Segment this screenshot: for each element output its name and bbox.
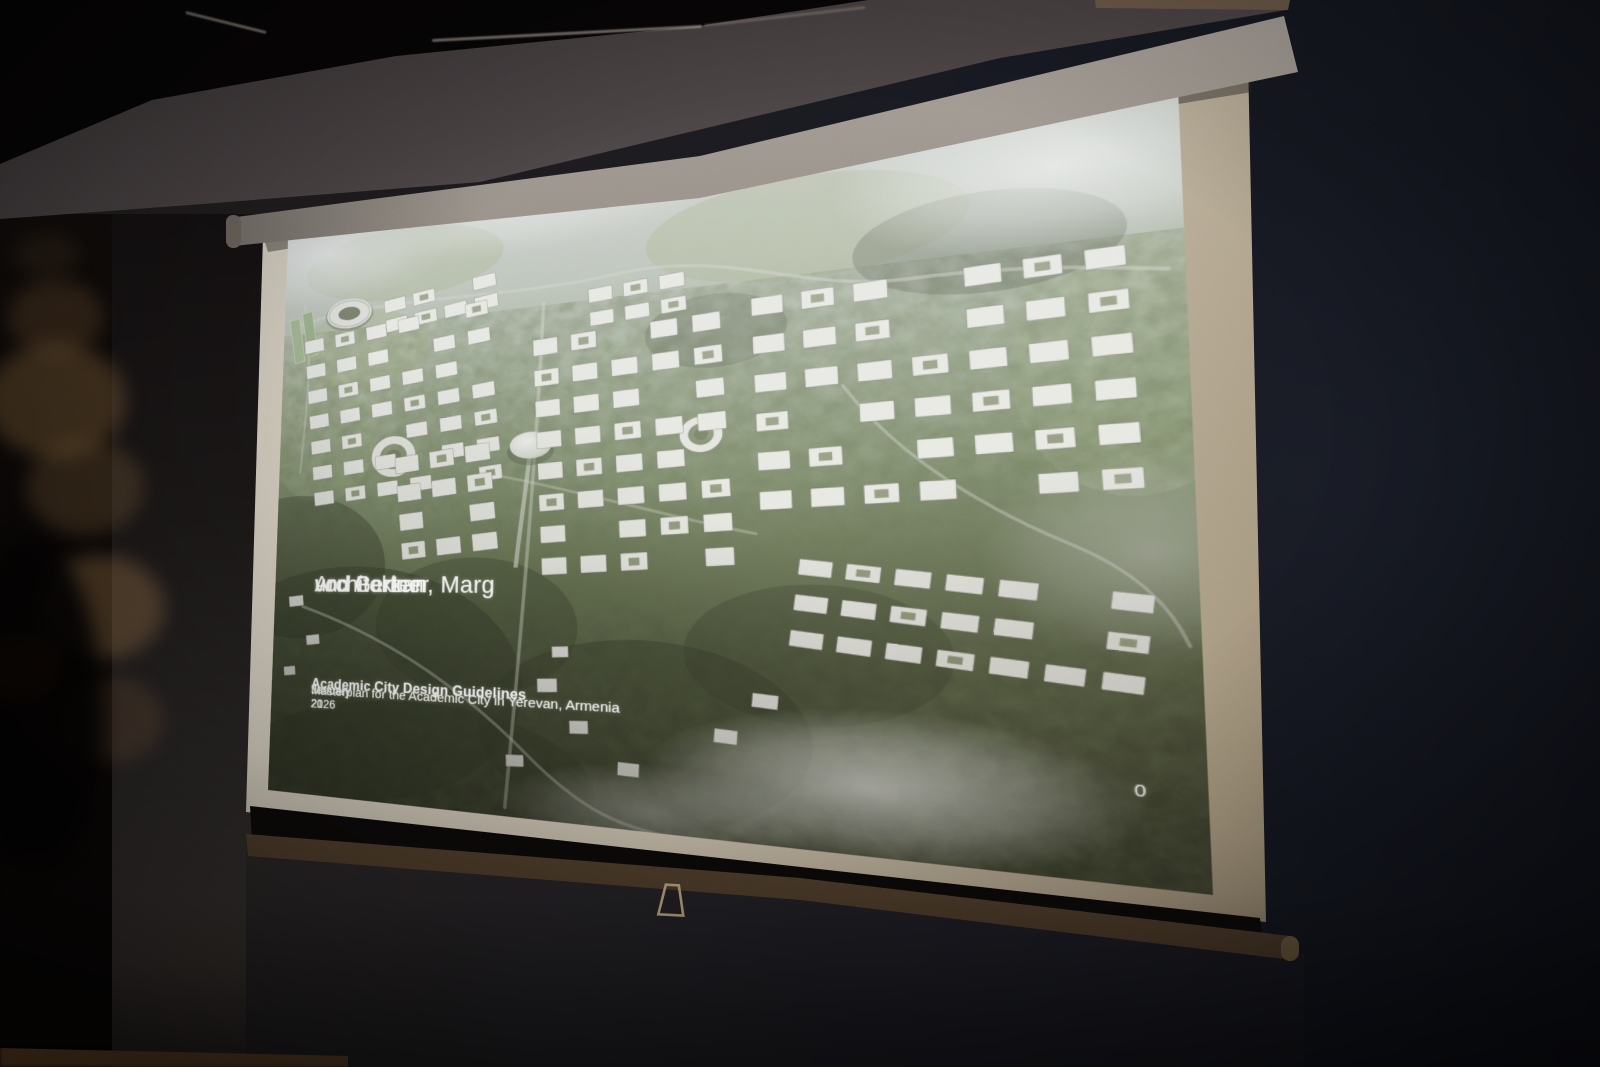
housing-endcap-left [226,215,241,248]
pull-handle-ring [658,884,685,915]
weight-bar-endcap [1281,936,1299,961]
photo-of-presentation-room: Architekten von Gerkan, Marg und Partner… [0,0,1600,1067]
screen-pull-handle [654,881,690,921]
reflection-blotch [14,233,80,277]
reflection-blotch [26,440,144,535]
slide-author-line: und Partner [314,571,429,598]
slide-author-block: Architekten von Gerkan, Marg und Partner [315,571,669,572]
reflection-blotch [0,343,126,458]
slide-meta-block: Academic City Design Guidelines Masterpl… [312,676,914,707]
slide-page-number: 0 [1134,781,1147,802]
housing-endcap-right [1272,13,1299,74]
